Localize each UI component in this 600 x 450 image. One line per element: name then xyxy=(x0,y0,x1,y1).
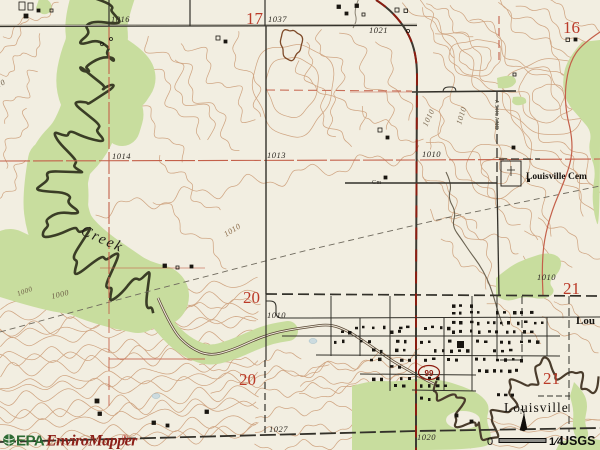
svg-text:1016: 1016 xyxy=(111,14,130,24)
svg-text:Louisville: Louisville xyxy=(504,400,569,415)
svg-text:16: 16 xyxy=(563,18,580,37)
svg-text:1013: 1013 xyxy=(267,150,286,160)
svg-text:1020: 1020 xyxy=(417,432,436,442)
svg-text:EPA: EPA xyxy=(16,433,45,450)
svg-text:99: 99 xyxy=(425,369,434,378)
svg-text:0: 0 xyxy=(487,436,493,448)
svg-text:21: 21 xyxy=(543,369,560,388)
svg-text:1010: 1010 xyxy=(422,149,441,159)
svg-text:N: N xyxy=(520,408,525,416)
svg-text:ASHLAND: ASHLAND xyxy=(493,100,499,131)
svg-text:20: 20 xyxy=(243,288,260,307)
svg-text:1014: 1014 xyxy=(112,151,131,161)
svg-text:1010: 1010 xyxy=(267,310,286,320)
svg-text:17: 17 xyxy=(246,9,264,28)
svg-text:21: 21 xyxy=(563,279,580,298)
svg-text:1021: 1021 xyxy=(369,25,388,35)
svg-text:USGS: USGS xyxy=(560,434,595,448)
svg-text:Lou: Lou xyxy=(576,315,595,327)
svg-text:20: 20 xyxy=(239,370,256,389)
svg-text:1010: 1010 xyxy=(537,272,556,282)
svg-text:®: ® xyxy=(122,433,128,442)
svg-text:1027: 1027 xyxy=(269,424,288,434)
svg-text:Cm: Cm xyxy=(372,180,382,186)
svg-text:1037: 1037 xyxy=(268,14,287,24)
svg-text:Louisville Cem: Louisville Cem xyxy=(526,172,587,182)
